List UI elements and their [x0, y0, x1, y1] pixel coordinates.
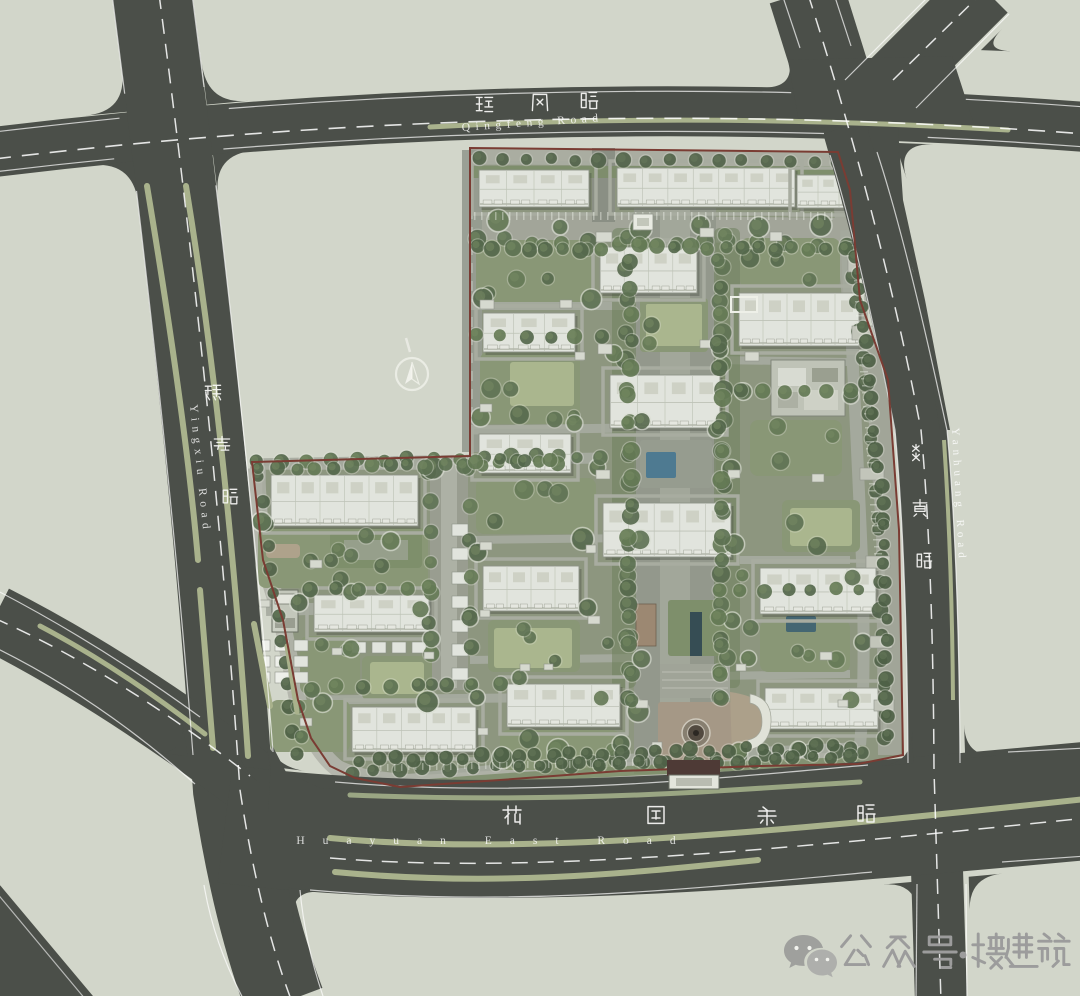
svg-text:Huayuan East Road: Huayuan East Road [296, 835, 693, 847]
